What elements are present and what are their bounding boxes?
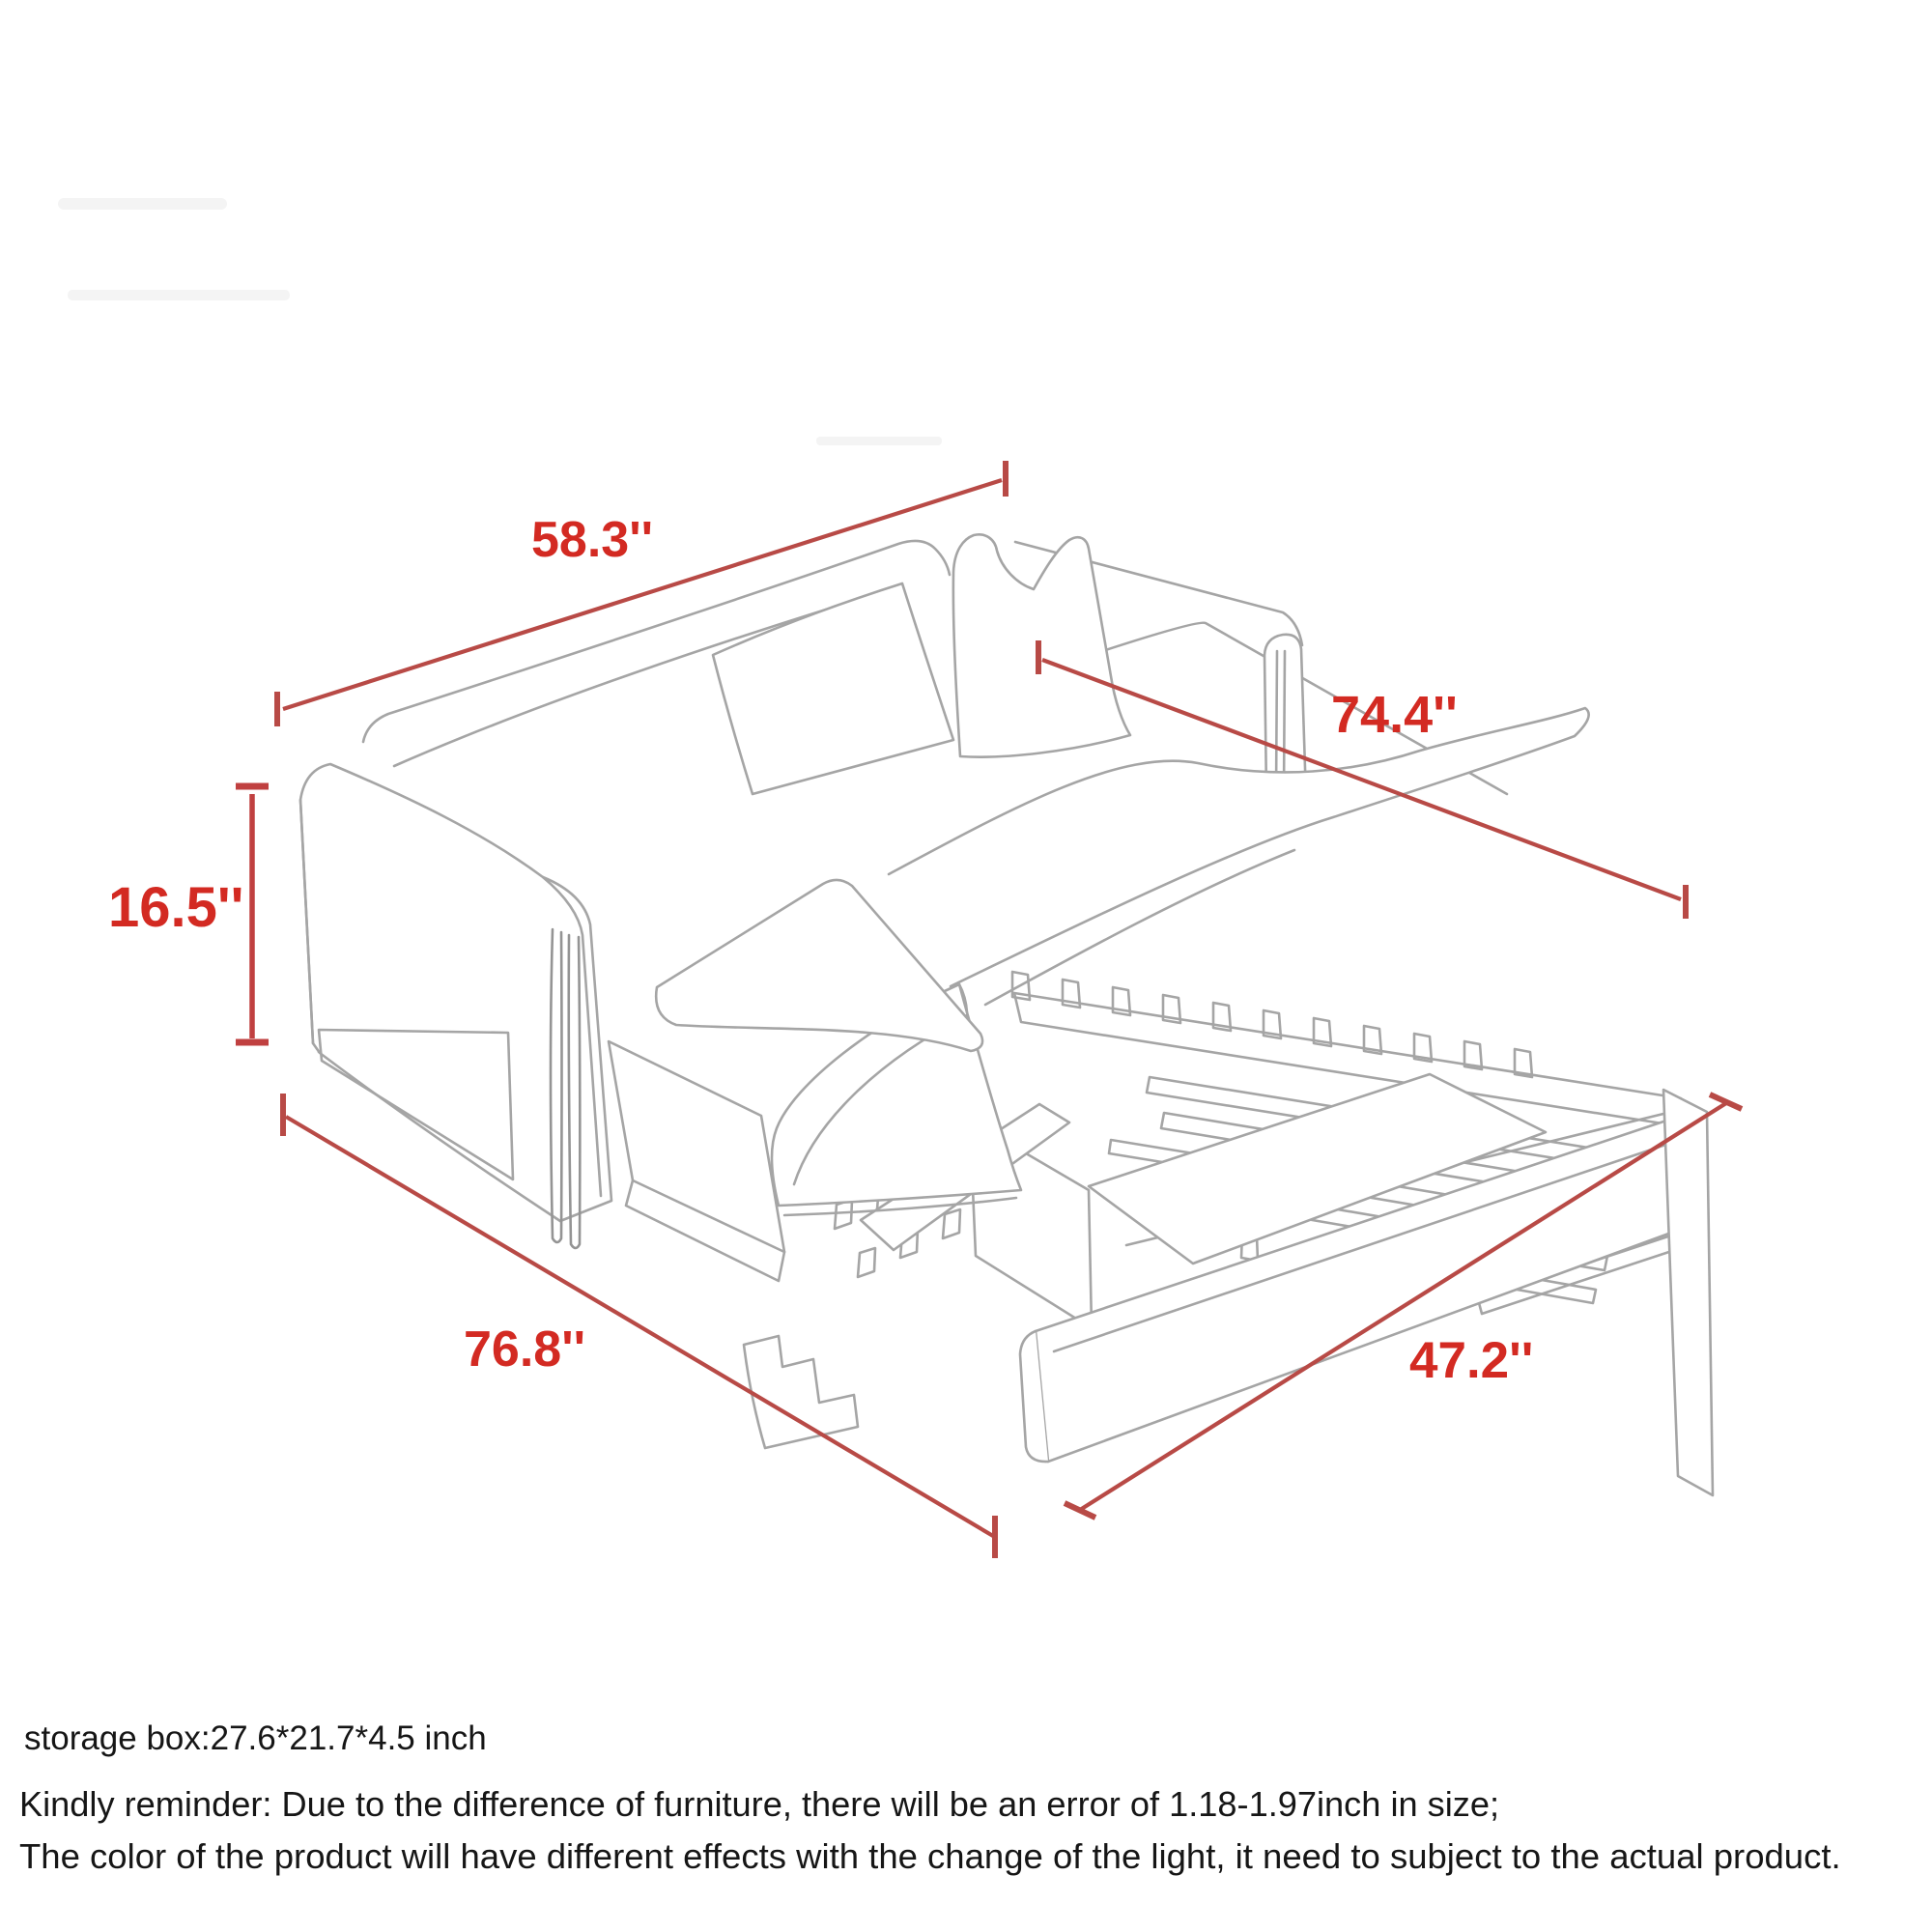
svg-text:storage box:27.6*21.7*4.5 inch: storage box:27.6*21.7*4.5 inch [24,1719,487,1757]
svg-text:47.2'': 47.2'' [1409,1332,1533,1389]
svg-text:The color of the product will: The color of the product will have diffe… [19,1836,1841,1876]
svg-text:74.4'': 74.4'' [1331,686,1458,744]
svg-text:58.3'': 58.3'' [531,512,653,568]
svg-text:76.8'': 76.8'' [464,1321,585,1378]
svg-text:16.5'': 16.5'' [108,876,243,939]
svg-text:Kindly reminder: Due to the di: Kindly reminder: Due to the difference o… [19,1784,1499,1824]
